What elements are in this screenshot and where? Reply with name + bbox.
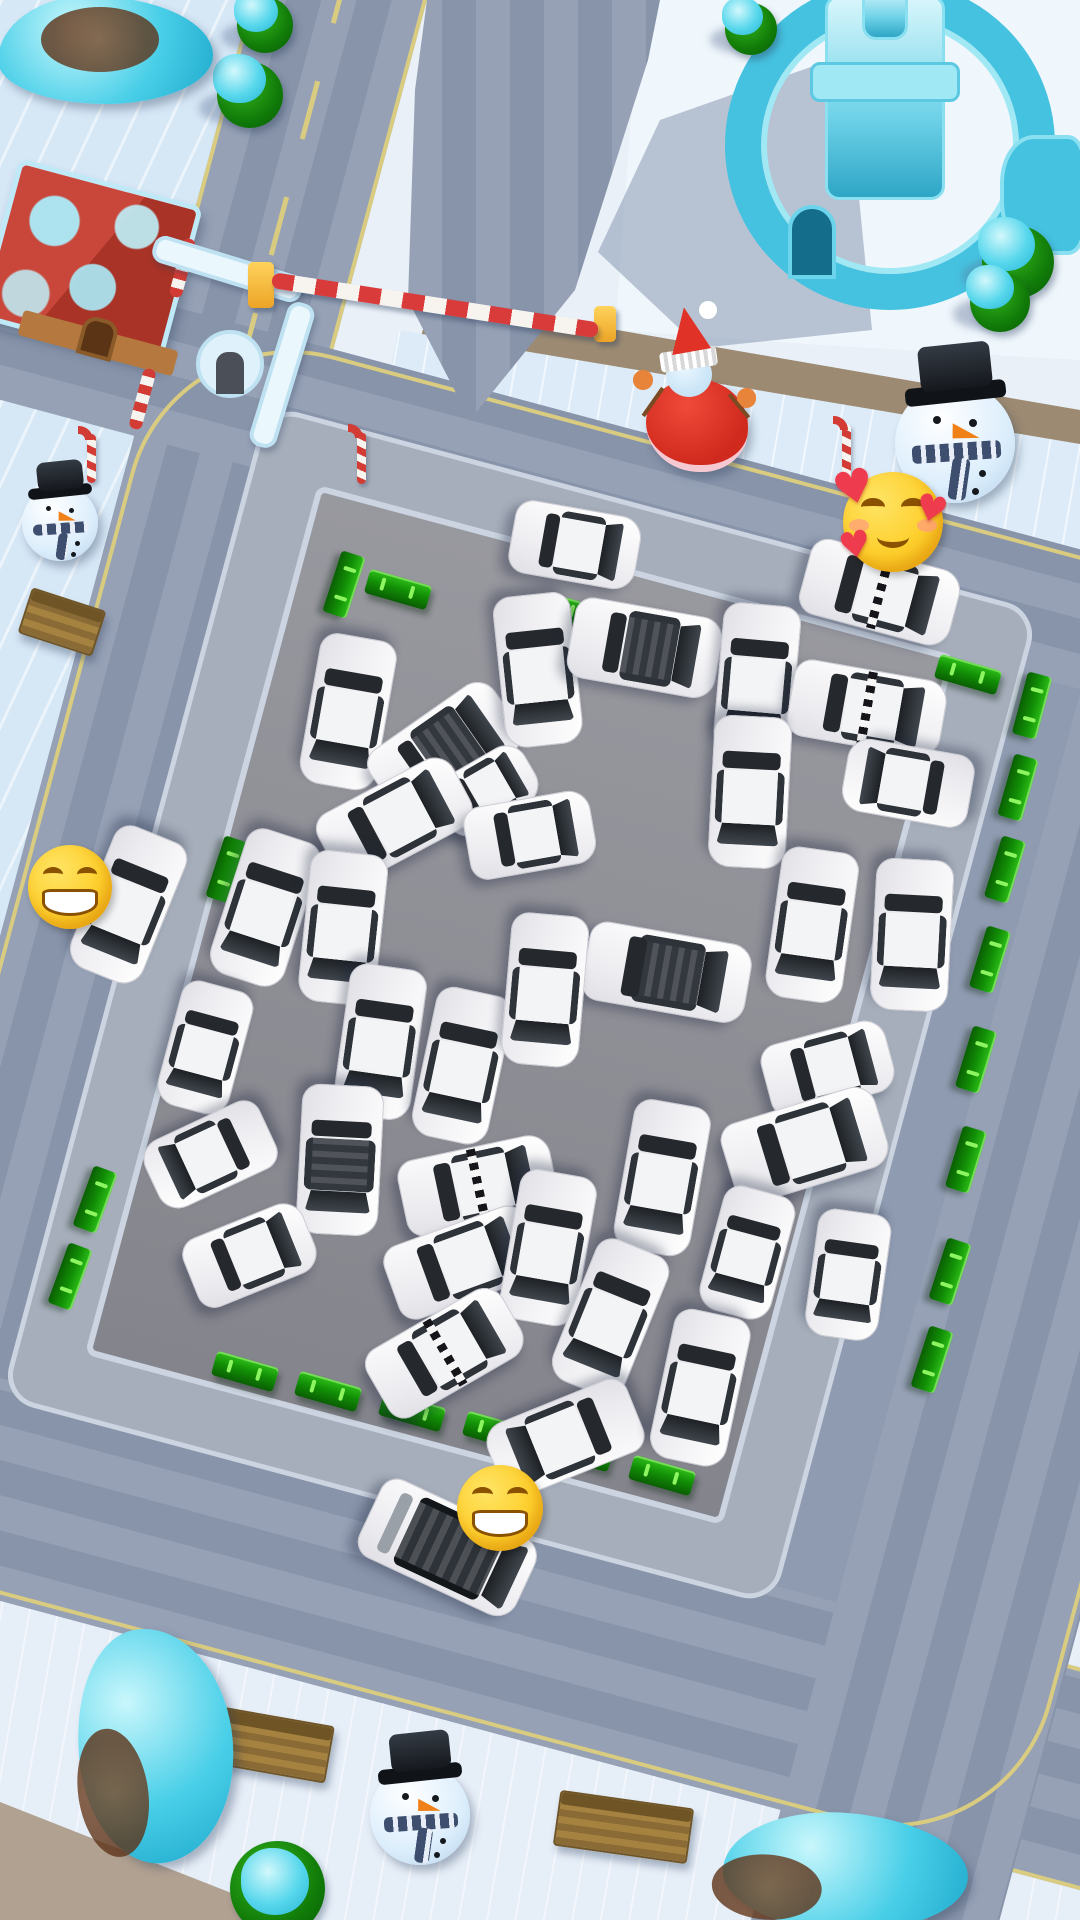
car-cabin <box>721 656 792 715</box>
frozen-tree <box>237 0 293 53</box>
hedge-highlight <box>226 851 240 859</box>
hedge-highlight <box>334 594 348 602</box>
car-cabin <box>309 685 384 749</box>
snowman-eye <box>432 1795 439 1802</box>
emoji-eye <box>77 867 97 882</box>
car-rear-window <box>884 894 943 914</box>
cane-hook <box>833 416 848 430</box>
car-cabin <box>774 899 848 961</box>
cane-hook <box>78 426 93 440</box>
hedge-highlight <box>1023 716 1037 723</box>
snowman <box>370 1750 470 1900</box>
emoji-smile <box>877 526 909 548</box>
hedge-highlight <box>980 969 994 977</box>
snowman-top-hat <box>917 340 993 392</box>
hedge-highlight <box>309 1379 316 1393</box>
snowman-button <box>71 552 76 557</box>
fountain-collar <box>810 62 960 102</box>
frozen-tree <box>725 3 777 55</box>
emoji-eye <box>43 867 63 882</box>
car-cabin <box>303 1137 376 1193</box>
hedge-highlight <box>949 1253 963 1261</box>
tree-snow-cap <box>966 265 1014 309</box>
cane-hook <box>348 424 363 438</box>
car-windshield <box>716 822 779 847</box>
hedge-highlight <box>922 1369 936 1377</box>
car-cabin <box>509 966 580 1025</box>
santa-snowman <box>642 325 752 475</box>
hedge-highlight <box>1004 851 1018 859</box>
hedge-highlight <box>343 566 357 574</box>
hedge-highlight <box>643 1463 650 1477</box>
hedge-highlight <box>226 1359 233 1373</box>
snowman-button <box>440 1838 446 1844</box>
hedge-highlight <box>1017 769 1031 776</box>
car[interactable] <box>869 857 955 1013</box>
car-windshield <box>878 965 941 990</box>
snowman-top-hat <box>388 1729 452 1773</box>
emoji-smile-teeth <box>472 1510 529 1538</box>
snowman <box>22 474 98 588</box>
smiling-face-hearts-emoji: ♥♥♥ <box>843 472 943 572</box>
santa-hat-pom <box>699 301 717 319</box>
beaming-face-emoji <box>457 1465 543 1551</box>
fountain-door <box>788 205 836 279</box>
snowman-button <box>979 470 986 477</box>
cane-stem <box>87 434 96 483</box>
game-stage: ♥♥♥ <box>0 0 1080 1920</box>
heart-icon: ♥ <box>836 525 874 566</box>
hedge-highlight <box>84 1209 98 1217</box>
hedge-highlight <box>995 879 1009 887</box>
emoji-smile-teeth <box>42 889 97 916</box>
car-cabin <box>306 903 378 963</box>
hedge-highlight <box>672 1472 679 1486</box>
car-cabin <box>715 769 785 826</box>
car[interactable] <box>500 911 591 1069</box>
car-cabin <box>623 1151 698 1215</box>
hedge-highlight <box>940 1281 954 1289</box>
hedge-highlight <box>966 1069 980 1077</box>
tree-snow-cap <box>213 54 266 103</box>
ice-mound <box>0 0 213 104</box>
snowman-button <box>972 488 979 495</box>
hedge-highlight <box>255 1368 262 1382</box>
snowman-eye <box>402 1793 409 1800</box>
frozen-bush <box>230 1841 325 1920</box>
hedge-highlight <box>949 662 956 676</box>
snowman-button <box>434 1852 440 1858</box>
fountain-pipe <box>862 0 908 40</box>
candy-cane <box>78 428 104 483</box>
bush-snow-cap <box>241 1848 309 1915</box>
gate-post <box>594 306 616 342</box>
tree-snow-cap <box>978 217 1036 270</box>
car-cabin <box>813 1253 882 1306</box>
car-cabin <box>877 912 947 969</box>
hedge-highlight <box>379 577 386 591</box>
snowman-top-hat <box>36 459 84 493</box>
hedge-highlight <box>59 1286 73 1294</box>
emoji-eye <box>507 1487 528 1502</box>
hedge-highlight <box>217 879 231 887</box>
car[interactable] <box>707 714 793 870</box>
yard-arch-opening <box>216 352 244 394</box>
hedge-highlight <box>408 586 415 600</box>
hedge-highlight <box>1008 798 1022 805</box>
hedge-highlight <box>931 1341 945 1349</box>
car[interactable] <box>295 1083 385 1237</box>
cane-stem <box>357 432 366 484</box>
car-windshield <box>304 1190 371 1214</box>
santa-mitten <box>633 370 653 390</box>
car-cabin <box>509 1221 584 1285</box>
emoji-eye <box>472 1487 493 1502</box>
frozen-tree <box>970 272 1030 332</box>
beaming-face-emoji <box>28 845 112 929</box>
hedge-highlight <box>965 1141 979 1149</box>
hedge-highlight <box>1030 687 1044 694</box>
ice-mound-rock <box>41 7 159 72</box>
candy-cane <box>348 426 374 484</box>
hedge-highlight <box>975 1041 989 1049</box>
frozen-tree <box>217 62 283 128</box>
car-rear-window <box>722 751 781 771</box>
hedge-highlight <box>978 671 985 685</box>
hedge-highlight <box>70 1258 84 1266</box>
gate-post <box>248 262 274 308</box>
hedge-highlight <box>989 941 1003 949</box>
hedge-highlight <box>95 1181 109 1189</box>
car-cabin <box>342 1016 416 1078</box>
hedge-highlight <box>956 1169 970 1177</box>
hedge-highlight <box>338 1388 345 1402</box>
